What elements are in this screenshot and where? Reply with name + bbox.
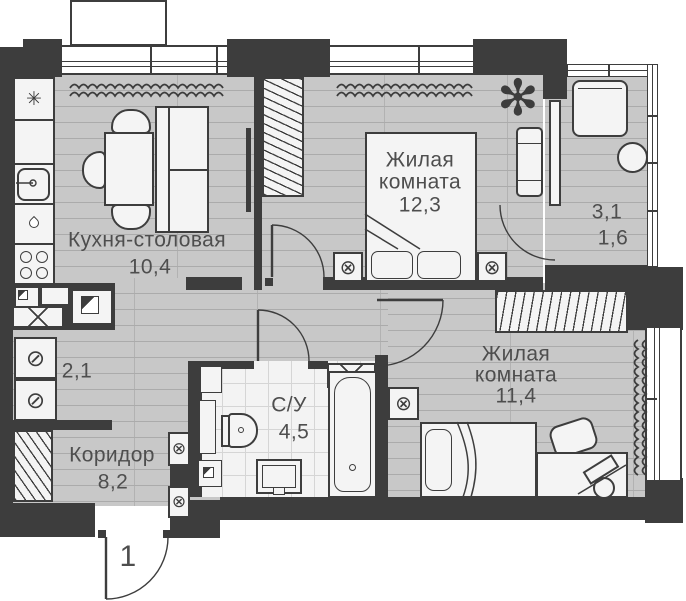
- living-b-window: [645, 328, 682, 480]
- door-hinge-nub: [163, 530, 171, 538]
- armchair-back-line: [578, 88, 622, 89]
- rail-tick: [647, 115, 658, 117]
- rail-tick: [647, 162, 658, 164]
- window-mullion: [150, 47, 152, 73]
- living-a-area: 12,3: [399, 195, 441, 216]
- riser-box-1: ⊗: [168, 432, 190, 466]
- kitchen-window: [62, 45, 227, 75]
- wall-bath-north-b: [308, 361, 328, 369]
- washer-icon: ⊘: [26, 387, 45, 414]
- living-a-label-2: комната: [379, 172, 461, 193]
- kitchen-sink-basin: [17, 168, 50, 201]
- riser-connector: [170, 464, 188, 488]
- corridor-label: Коридор: [69, 445, 155, 466]
- washing-machine-2: ⊘: [14, 379, 57, 421]
- bathtub-inner: [334, 377, 371, 492]
- bath-sink-basin: [262, 465, 296, 488]
- utility-area: 2,1: [62, 361, 92, 382]
- balcony-door-leaf: [549, 100, 561, 206]
- fixture-icon: ⊗: [172, 439, 186, 459]
- bed-pillow: [371, 251, 413, 279]
- wall-bottom-left: [0, 503, 95, 537]
- bathroom-area: 4,5: [279, 422, 309, 443]
- stove-burner: [36, 267, 48, 279]
- balcony-rail-top: [567, 64, 658, 77]
- bath-mirror: [199, 400, 216, 454]
- stove-burner: [36, 251, 48, 263]
- wall-top-right-ext: [543, 63, 567, 99]
- living-b-wardrobe: [495, 290, 628, 333]
- stove-burner: [20, 267, 32, 279]
- shaft-box: [41, 287, 69, 305]
- window-mullion: [645, 398, 657, 400]
- lamp-icon: ⊗: [395, 391, 412, 416]
- lamp-icon: ⊗: [484, 255, 501, 280]
- window-mullion: [418, 47, 420, 73]
- bath-sink-stub: [273, 487, 285, 495]
- wall-top-left-step: [23, 39, 62, 48]
- wall-under-washers: [12, 420, 112, 430]
- wall-divider-kitchen-living: [254, 75, 262, 290]
- toilet-dot: [238, 427, 244, 433]
- shaft-flag-icon: [81, 296, 99, 314]
- corridor-wardrobe: [13, 430, 53, 502]
- bathroom-label: С/У: [271, 395, 307, 416]
- upper-balcony-outline: [70, 0, 167, 46]
- kitchen-label: Кухня-столовая: [68, 230, 226, 251]
- desk-lamp-base: [593, 477, 615, 499]
- dining-chair-top: [111, 109, 151, 134]
- washing-machine-1: ⊘: [14, 337, 57, 379]
- dining-table: [104, 132, 154, 206]
- riser-box-2: ⊗: [168, 486, 190, 518]
- bed-pillow: [417, 251, 461, 279]
- shaft-flag-icon: [18, 290, 28, 300]
- living-b-label-1: Жилая: [482, 344, 550, 365]
- wall-right-jut: [645, 267, 683, 330]
- rail-tick: [647, 210, 658, 212]
- plant-glyph: ✻: [497, 69, 539, 127]
- rail-tick: [608, 64, 610, 77]
- corridor-area: 8,2: [98, 472, 128, 493]
- fridge-snowflake-icon: ✳: [26, 88, 42, 111]
- fixture-icon: ⊗: [172, 492, 186, 512]
- sofa-cushion-divider: [168, 169, 207, 171]
- kitchen-area: 10,4: [129, 257, 171, 278]
- door-hinge-nub: [98, 530, 106, 538]
- vent-shaft: [13, 307, 63, 327]
- living-a-label-1: Жилая: [386, 150, 454, 171]
- bath-shelf: [200, 366, 222, 393]
- balcony-side-table: [617, 142, 648, 173]
- balcony-rail-right: [647, 64, 658, 267]
- stove: [13, 243, 55, 285]
- wall-bottom-main: [220, 497, 645, 520]
- kitchen-counter: [13, 119, 55, 165]
- lamp-icon: ⊗: [340, 255, 357, 280]
- living-b-area: 11,4: [496, 386, 537, 407]
- window-mullion: [216, 47, 218, 73]
- wall-kitchen-south: [186, 277, 242, 290]
- balcony-armchair: [572, 80, 628, 137]
- floor-plan: ✳ ⊘ ⊘ ⊗ ⊗ ⊗ ⊗ ✻ ⊗: [0, 0, 686, 601]
- living-b-label-2: комната: [475, 365, 557, 386]
- entrance-door-arc: [106, 537, 168, 599]
- wall-top-mid: [227, 39, 330, 77]
- balcony-area-reduced: 1,6: [598, 228, 628, 249]
- nightstand-lamp: ⊗: [477, 252, 507, 282]
- bench-seat: [516, 127, 543, 197]
- living-a-window: [330, 45, 473, 75]
- balcony-area-total: 3,1: [592, 202, 622, 223]
- wall-bottom-right: [645, 478, 683, 523]
- nightstand-lamp: ⊗: [388, 387, 419, 420]
- bench-line: [518, 180, 541, 181]
- plant-icon: ✻: [492, 72, 544, 124]
- door-hinge-nub: [265, 278, 273, 286]
- kitchen-sofa: [155, 106, 209, 233]
- entrance-door-number: 1: [119, 542, 136, 572]
- wall-balcony-south: [545, 265, 658, 290]
- living-a-wardrobe: [262, 77, 304, 197]
- bench-line: [518, 143, 541, 144]
- bed-pillow: [425, 429, 452, 491]
- bathtub-drain: [349, 464, 356, 471]
- fridge: ✳: [13, 77, 55, 121]
- wall-wardrobe-right: [628, 290, 648, 330]
- bath-flag-icon: [203, 467, 214, 478]
- tv-panel: [246, 128, 251, 212]
- stove-burner: [20, 251, 32, 263]
- nightstand-lamp: ⊗: [333, 252, 363, 282]
- washer-icon: ⊘: [26, 345, 45, 372]
